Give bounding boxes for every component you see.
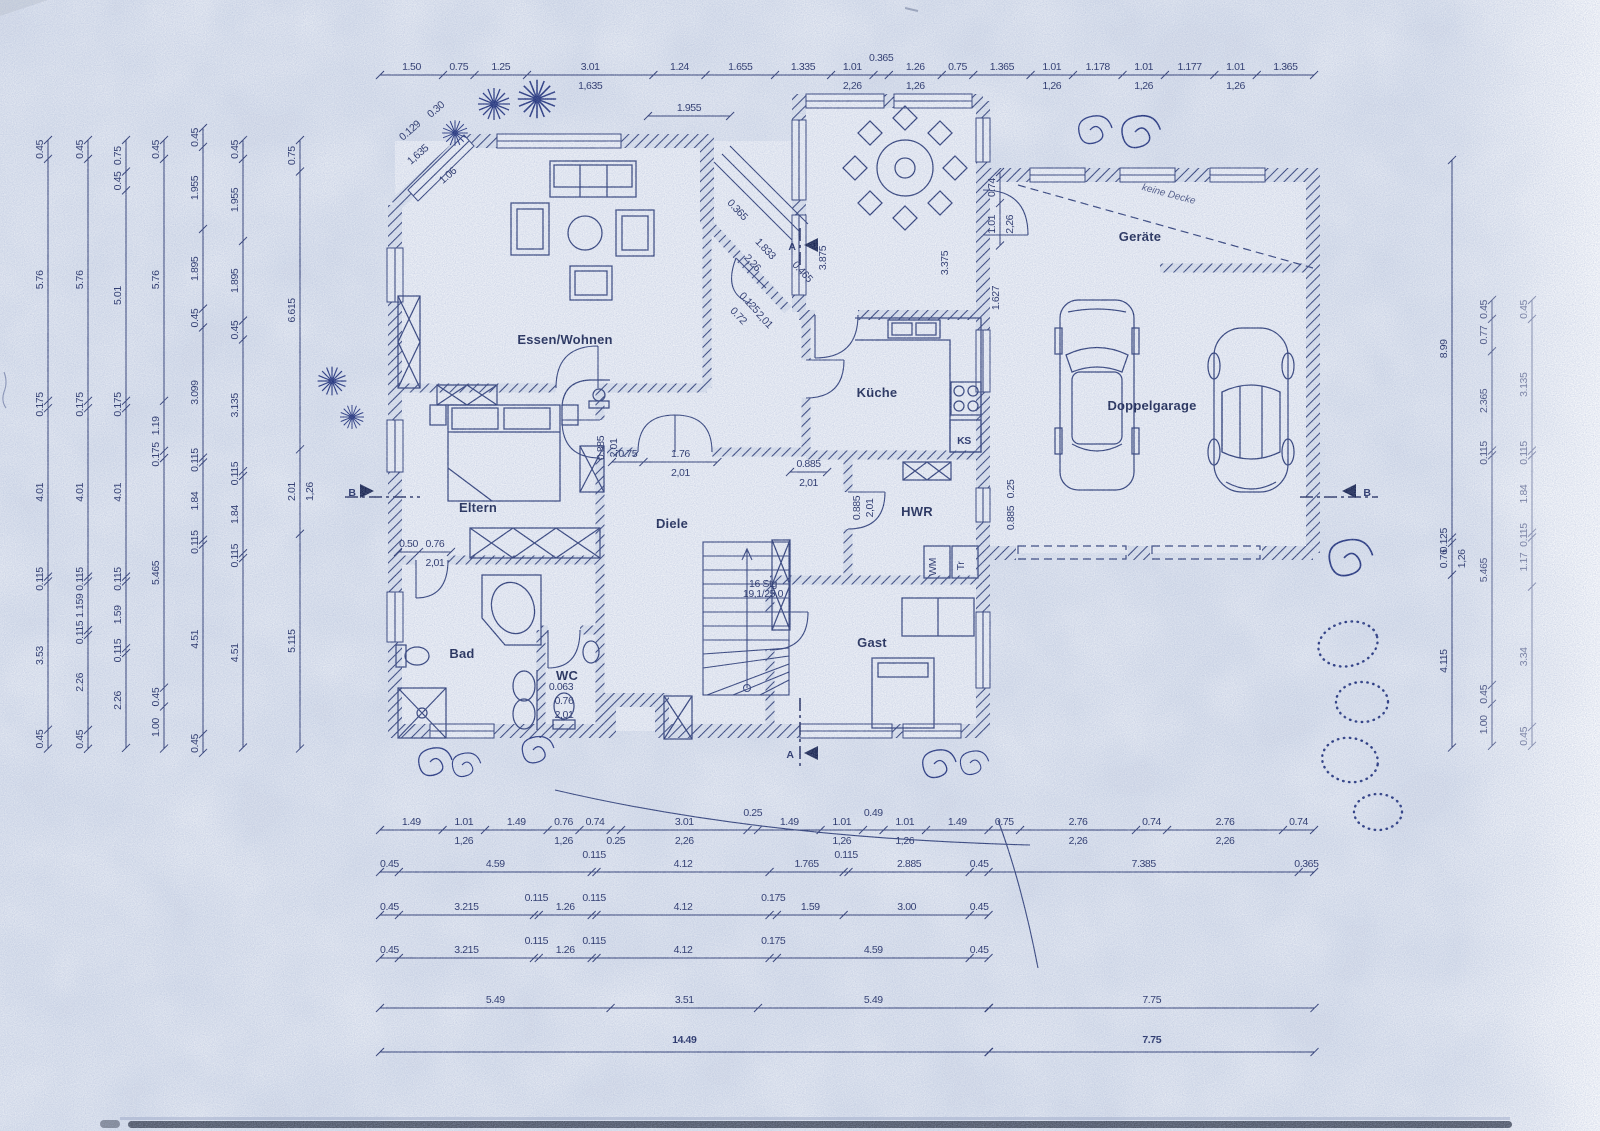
dimension-label: 3.215	[454, 944, 479, 956]
dimension-label: 1.26	[556, 944, 575, 956]
dimension-label: 2,26	[675, 835, 694, 847]
window-icon	[806, 94, 884, 108]
dimension-label: 0.75	[995, 816, 1014, 828]
dimension-label: 2,01	[555, 709, 574, 721]
dimension-label: 0.115	[525, 892, 549, 904]
dimension-label: 3.00	[897, 901, 916, 913]
floor-plan-canvas: 1.500.751.253.011,6351.241.6551.3351.012…	[0, 0, 1600, 1131]
dimension-label: 2,26	[843, 80, 862, 92]
dimension-label: 0.115	[229, 461, 241, 485]
dimension-label: 3.01	[581, 61, 600, 73]
dimension-label: 1.765	[794, 858, 819, 870]
dimension-label: 1.25	[491, 61, 510, 73]
dimension-label: 0.115	[229, 543, 241, 567]
dimension-label: 4.01	[74, 482, 86, 501]
dimension-label: 0.25	[1005, 479, 1017, 498]
dimension-label: 0.175	[150, 442, 162, 467]
annotation-label: A	[788, 241, 796, 253]
scan-streak	[120, 1117, 1510, 1120]
dimension-label: 0.885	[796, 458, 821, 470]
dimension-label: 1.50	[402, 61, 421, 73]
dimension-label: 7.385	[1132, 858, 1157, 870]
window-icon	[792, 215, 806, 295]
dimension-label: 0.45	[150, 687, 162, 706]
room-label-eltern: Eltern	[459, 500, 497, 515]
dimension-label: 5.49	[864, 994, 883, 1006]
dimension-label: 0.115	[74, 567, 86, 591]
dimension-label: 1.49	[948, 816, 967, 828]
dimension-label: 1.177	[1177, 61, 1202, 73]
dimension-label: 0.76	[554, 816, 573, 828]
dimension-label: 0.115	[834, 849, 858, 861]
room-label-gast: Gast	[857, 635, 887, 650]
dimension-label: 0.365	[1294, 858, 1319, 870]
dimension-label: 1.76	[671, 448, 690, 460]
dimension-label: 14.49	[672, 1034, 697, 1046]
dimension-label: 3.01	[675, 816, 694, 828]
dimension-label: 1.24	[670, 61, 689, 73]
dimension-label: 0.115	[582, 935, 606, 947]
dimension-label: 0.115	[112, 638, 124, 662]
dimension-label: 0.45	[970, 901, 989, 913]
room-label-bad: Bad	[449, 646, 474, 661]
dimension-label: 1.01	[1134, 61, 1153, 73]
dimension-label: 0.45	[970, 944, 989, 956]
dimension-label: 1.365	[1273, 61, 1298, 73]
dimension-label: 1.627	[990, 285, 1002, 310]
dimension-label: 0.45	[112, 171, 124, 190]
dimension-label: 1.26	[556, 901, 575, 913]
dimension-label: 1.84	[229, 505, 241, 524]
dimension-label: 1.01	[843, 61, 862, 73]
dimension-label: 1.49	[402, 816, 421, 828]
dimension-label: 3.51	[675, 994, 694, 1006]
room-label-wc: WC	[556, 668, 578, 683]
dimension-label: 1.655	[728, 61, 753, 73]
dimension-label: 1.955	[229, 187, 241, 212]
dimension-label: 0.115	[189, 448, 201, 472]
dimension-label: 0.885	[595, 435, 607, 460]
dimension-label: 0.365	[869, 52, 894, 64]
dimension-label: 2,26	[1216, 835, 1235, 847]
dimension-label: 5.76	[74, 270, 86, 289]
annotation-label: 19,1/25,0	[743, 588, 784, 600]
window-icon	[387, 420, 403, 472]
dimension-label: 7.75	[1142, 1034, 1161, 1046]
dimension-label: 1,26	[554, 835, 573, 847]
dimension-label: 0.45	[229, 139, 241, 158]
dimension-label: 1.159	[74, 593, 86, 618]
dimension-label: 0.76	[426, 538, 445, 550]
dimension-label: 5.465	[150, 560, 162, 585]
dimension-label: 1.955	[189, 175, 201, 200]
window-icon	[976, 330, 990, 392]
dimension-label: 1.01	[986, 214, 998, 233]
dimension-label: 2,26	[1069, 835, 1088, 847]
dimension-label: 2.76	[1216, 816, 1235, 828]
window-icon	[1120, 168, 1175, 182]
dimension-label: 7.75	[1142, 994, 1161, 1006]
scan-fade-right	[1455, 0, 1600, 1131]
room-label-ger-te: Geräte	[1119, 229, 1161, 244]
dimension-label: 0.175	[34, 392, 46, 417]
dimension-label: 2,01	[864, 498, 876, 517]
dimension-label: 1.84	[189, 491, 201, 510]
window-icon	[903, 724, 961, 738]
dimension-label: 0.115	[525, 935, 549, 947]
window-icon	[387, 592, 403, 642]
dimension-label: 0.45	[74, 139, 86, 158]
dimension-label: 3.135	[229, 393, 241, 418]
dimension-label: 0.25	[743, 807, 762, 819]
window-icon	[976, 118, 990, 162]
dimension-label: 0.74	[1142, 816, 1161, 828]
dimension-label: 2.76	[1069, 816, 1088, 828]
dimension-label: 0.50	[399, 538, 418, 550]
dimension-label: 1.49	[780, 816, 799, 828]
dimension-label: 0.25	[606, 835, 625, 847]
dimension-label: 0.45	[150, 139, 162, 158]
dimension-label: 1.01	[454, 816, 473, 828]
dimension-label: 5.49	[486, 994, 505, 1006]
dimension-label: 1,635	[578, 80, 603, 92]
dimension-label: 4.12	[674, 901, 693, 913]
dimension-label: 0.76	[1438, 549, 1450, 568]
dimension-label: 0.45	[380, 858, 399, 870]
dimension-label: 0.115	[112, 567, 124, 591]
dimension-label: 2.26	[112, 691, 124, 710]
dimension-label: 0.115	[582, 849, 606, 861]
dimension-label: 1.59	[112, 605, 124, 624]
dimension-label: 0.885	[1005, 505, 1017, 530]
annotation-label: KS	[957, 435, 971, 447]
dimension-label: 4.12	[674, 944, 693, 956]
dimension-label: 1.19	[150, 416, 162, 435]
annotation-label: A	[786, 749, 794, 761]
dimension-label: 0.74	[986, 178, 998, 197]
dimension-label: 0.45	[970, 858, 989, 870]
dimension-label: 4.01	[34, 482, 46, 501]
dimension-label: 3.215	[454, 901, 479, 913]
annotation-label: B	[1363, 487, 1371, 499]
dimension-label: 1,26	[1134, 80, 1153, 92]
dimension-label: 1.895	[189, 256, 201, 281]
dimension-label: 0.45	[34, 139, 46, 158]
dimension-label: 0.115	[582, 892, 606, 904]
dimension-label: 1.895	[229, 268, 241, 293]
dimension-label: 0.175	[761, 935, 786, 947]
dimension-label: 0.45	[34, 729, 46, 748]
dimension-label: 1,26	[304, 482, 316, 501]
annotation-label: Tr	[955, 561, 967, 571]
dimension-label: 0.45	[189, 308, 201, 327]
dimension-label: 1.01	[1226, 61, 1245, 73]
dimension-label: 0.49	[864, 807, 883, 819]
dimension-label: 0.175	[112, 392, 124, 417]
dimension-label: 0.175	[761, 892, 786, 904]
dimension-label: 1,26	[1226, 80, 1245, 92]
dimension-label: 0.75	[112, 146, 124, 165]
dimension-label: 0.45	[189, 127, 201, 146]
dimension-label: 3.53	[34, 646, 46, 665]
room-label-essen-wohnen: Essen/Wohnen	[517, 332, 612, 347]
annotation-label: WM	[927, 558, 939, 576]
dimension-label: 0.45	[229, 320, 241, 339]
dimension-label: 3.099	[189, 380, 201, 405]
window-icon	[792, 120, 806, 200]
dimension-label: 3.375	[939, 250, 951, 275]
dimension-label: 2,01	[799, 477, 818, 489]
dimension-label: 1.365	[990, 61, 1015, 73]
dimension-label: 0.76	[555, 695, 574, 707]
scanned-floor-plan-sheet: 1.500.751.253.011,6351.241.6551.3351.012…	[0, 0, 1600, 1131]
dimension-label: 0.74	[586, 816, 605, 828]
dimension-label: 2.01	[286, 482, 298, 501]
dimension-label: 0.885	[851, 495, 863, 520]
dimension-label: 1.01	[895, 816, 914, 828]
dimension-label: 1.49	[507, 816, 526, 828]
dimension-label: 0.115	[34, 567, 46, 591]
dimension-label: 0.175	[74, 392, 86, 417]
dimension-label: 0.125	[1438, 528, 1450, 553]
window-icon	[1210, 168, 1265, 182]
dimension-label: 1.26	[906, 61, 925, 73]
dimension-label: 1.01	[1042, 61, 1061, 73]
dimension-label: 4.51	[189, 629, 201, 648]
dimension-label: 0.75	[948, 61, 967, 73]
dimension-label: 0.115	[74, 620, 86, 644]
dimension-label: 1.59	[801, 901, 820, 913]
dimension-label: 0.75	[286, 146, 298, 165]
dimension-label: 6.615	[286, 298, 298, 323]
dimension-label: 0.75	[449, 61, 468, 73]
dimension-label: 4.01	[112, 482, 124, 501]
dimension-label: 4.59	[864, 944, 883, 956]
dimension-label: 2,01	[426, 557, 445, 569]
dimension-label: 1.01	[832, 816, 851, 828]
dimension-label: 2.885	[897, 858, 922, 870]
room-label-k-che: Küche	[857, 385, 898, 400]
dimension-label: 1,26	[832, 835, 851, 847]
dimension-label: 5.01	[112, 286, 124, 305]
dimension-label: 2.26	[74, 672, 86, 691]
dimension-label: 1.335	[791, 61, 816, 73]
dimension-label: 3.875	[817, 245, 829, 270]
annotation-label: B	[348, 487, 356, 499]
dimension-label: 1,26	[895, 835, 914, 847]
dimension-label: 8.99	[1438, 339, 1450, 358]
dimension-label: 0.74	[1289, 816, 1308, 828]
dimension-label: 5.76	[34, 270, 46, 289]
window-icon	[976, 488, 990, 522]
scan-edge-blob	[100, 1120, 120, 1128]
window-icon	[1030, 168, 1085, 182]
dimension-label: 4.12	[674, 858, 693, 870]
scan-edge-bar	[128, 1121, 1512, 1128]
room-label-doppelgarage: Doppelgarage	[1107, 398, 1196, 413]
dimension-label: 4.115	[1438, 649, 1450, 673]
dimension-label: 0.45	[189, 733, 201, 752]
dimension-label: 1.00	[150, 718, 162, 737]
dimension-label: 2,01	[671, 467, 690, 479]
room-label-diele: Diele	[656, 516, 688, 531]
dimension-label: 4.51	[229, 643, 241, 662]
dimension-label: 5.76	[150, 270, 162, 289]
window-icon	[497, 134, 621, 148]
window-icon	[387, 248, 403, 302]
dimension-label: 1,26	[1042, 80, 1061, 92]
window-icon	[976, 612, 990, 688]
dimension-label: 0.45	[380, 901, 399, 913]
dimension-label: 0.75	[618, 448, 637, 460]
dimension-label: 1.955	[677, 102, 702, 114]
dimension-label: 0.45	[380, 944, 399, 956]
dimension-label: 4.59	[486, 858, 505, 870]
dimension-label: 0.115	[189, 530, 201, 554]
dimension-label: 2,01	[608, 438, 620, 457]
dimension-label: 5.115	[286, 629, 298, 653]
dimension-label: 2,26	[1004, 214, 1016, 233]
dimension-label: 1.178	[1086, 61, 1111, 73]
dimension-label: 1,26	[454, 835, 473, 847]
dimension-label: 0.45	[74, 729, 86, 748]
dimension-label: 1,26	[906, 80, 925, 92]
window-icon	[800, 724, 892, 738]
room-label-hwr: HWR	[901, 504, 933, 519]
